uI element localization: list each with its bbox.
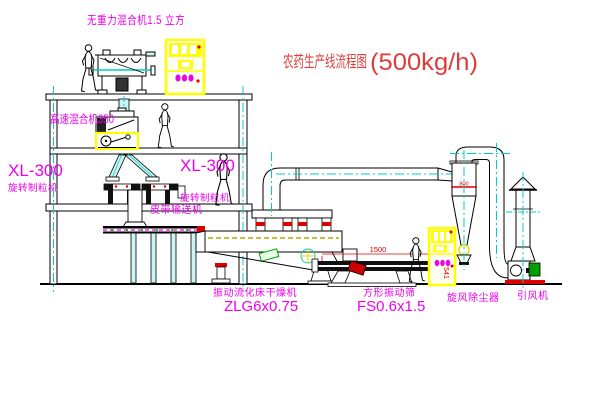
label-granulator-mid-name: 旋转制粒机 [180,192,230,204]
induced-draft-fan [505,261,545,284]
control-cabinet-right [429,228,455,285]
label-sieve-model: FS0.6x1.5 [357,298,425,315]
diagram-title-capacity: (500kg/h) [370,49,478,76]
gauge-dials [435,260,451,266]
label-fan: 引风机 [517,289,549,302]
mixer-drive-unit [96,133,138,149]
label-granulator-mid-model: XL-300 [180,156,235,175]
control-cabinet-roof [166,40,204,94]
label-gravity-mixer: 无重力混合机1.5 立方 [87,13,185,27]
dim-sieve-length: 1500 [370,245,387,254]
dim-sieve-height: 541 [442,267,449,279]
label-granulator-left-name: 旋转制粒机 [8,182,58,194]
diagram-svg: 无重力混合机1.5 立方 农药生产线流程图 (500kg/h) 高速混合机350… [0,0,600,403]
label-high-speed-mixer: 高速混合机350 [50,112,114,126]
fan-motor [529,263,540,276]
diagram-title: 农药生产线流程图 [283,53,367,71]
label-granulator-left-model: XL-300 [8,161,63,180]
cad-flow-diagram: 无重力混合机1.5 立方 农药生产线流程图 (500kg/h) 高速混合机350… [0,0,600,403]
dim-cyclone-diameter: 800 [459,182,468,188]
indicator-dot [197,45,200,48]
label-cyclone: 旋风除尘器 [447,291,500,304]
gauge-dials [175,74,193,81]
fan-base [505,280,545,284]
mixer-discharge [116,78,128,91]
indicator-dot [450,231,453,234]
indicator-dot [196,79,199,82]
label-belt-conveyor: 皮带输送机 [150,203,203,216]
inlet-stub [146,52,155,56]
label-dryer-model: ZLG6x0.75 [224,298,298,315]
indicator-dot [451,265,454,268]
